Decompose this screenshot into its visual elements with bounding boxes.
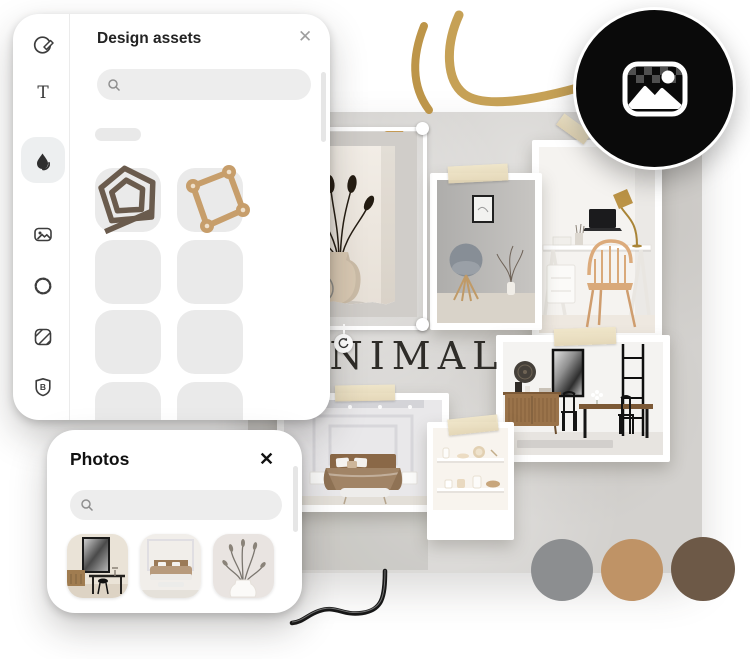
palette-swatch-gray[interactable] [531,539,593,601]
tape-bed-photo [335,384,395,401]
assets-close-button[interactable]: ✕ [298,28,312,45]
sidebar-item-text[interactable]: T [32,81,54,103]
svg-text:B: B [40,382,46,392]
search-icon [80,498,94,512]
thumbnail-art [67,534,128,598]
shelf-polaroid-art [433,428,508,510]
photos-panel-title: Photos [70,449,129,470]
sidebar-item-backgrounds[interactable] [32,326,54,348]
sidebar-item-templates[interactable] [32,34,54,56]
brand-icon: B [32,376,54,398]
sidebar-item-media[interactable] [32,223,54,245]
selection-handle-bottom-right[interactable] [416,318,429,331]
desk-photo[interactable] [532,140,662,340]
svg-text:T: T [37,83,49,103]
text-icon: T [32,81,54,103]
elements-icon [32,275,54,297]
rotate-icon [337,337,350,350]
square-nodes-asset[interactable] [171,158,259,246]
shapes-icon [32,150,54,172]
chair-photo[interactable] [430,173,542,330]
photos-panel: Photos ✕ [47,430,302,613]
assets-scrollbar[interactable] [321,72,326,142]
rotate-handle[interactable] [334,334,353,353]
photos-scrollbar[interactable] [293,466,298,532]
asset-tile[interactable] [95,382,161,420]
templates-icon [32,34,54,56]
dining-room-photo-art [503,342,663,455]
photos-search-input[interactable] [94,497,272,513]
thumbnail-art [140,534,201,598]
asset-tile[interactable] [177,310,243,374]
sidebar-item-shapes[interactable] [32,150,54,172]
palette-swatch-tan[interactable] [601,539,663,601]
photo-thumbnail-vase[interactable] [213,534,274,598]
photos-search-bar[interactable] [70,490,282,520]
image-feature-badge [573,7,736,170]
asset-tile[interactable] [177,382,243,420]
backgrounds-icon [32,326,54,348]
sidebar-item-brand[interactable]: B [32,376,54,398]
tool-rail: T [13,14,70,420]
tape-chair-photo [448,163,509,183]
desk-photo-art [539,147,655,333]
asset-tile[interactable] [95,310,161,374]
image-icon [621,60,689,118]
stage: MINIMAL [0,0,750,659]
media-icon [32,223,54,245]
palette-swatch-brown[interactable] [671,537,735,601]
photo-thumbnail-workspace[interactable] [67,534,128,598]
design-assets-panel: T [13,14,330,420]
assets-category-pill [95,128,141,141]
tape-dining-photo [554,327,617,346]
chair-photo-art [437,180,535,323]
asset-tile[interactable] [95,240,161,304]
photos-close-button[interactable]: ✕ [259,450,274,468]
selection-handle-top-right[interactable] [416,122,429,135]
search-icon [107,78,121,92]
dining-room-photo[interactable] [496,335,670,462]
shelf-polaroid-photo[interactable] [427,422,514,540]
house-outline-asset[interactable] [84,155,174,245]
thumbnail-art [213,534,274,598]
assets-search-input[interactable] [121,77,301,93]
photo-thumbnail-bedroom[interactable] [140,534,201,598]
asset-tile[interactable] [177,240,243,304]
assets-panel-title: Design assets [97,30,201,48]
assets-search-bar[interactable] [97,69,311,100]
sidebar-item-elements[interactable] [32,275,54,297]
